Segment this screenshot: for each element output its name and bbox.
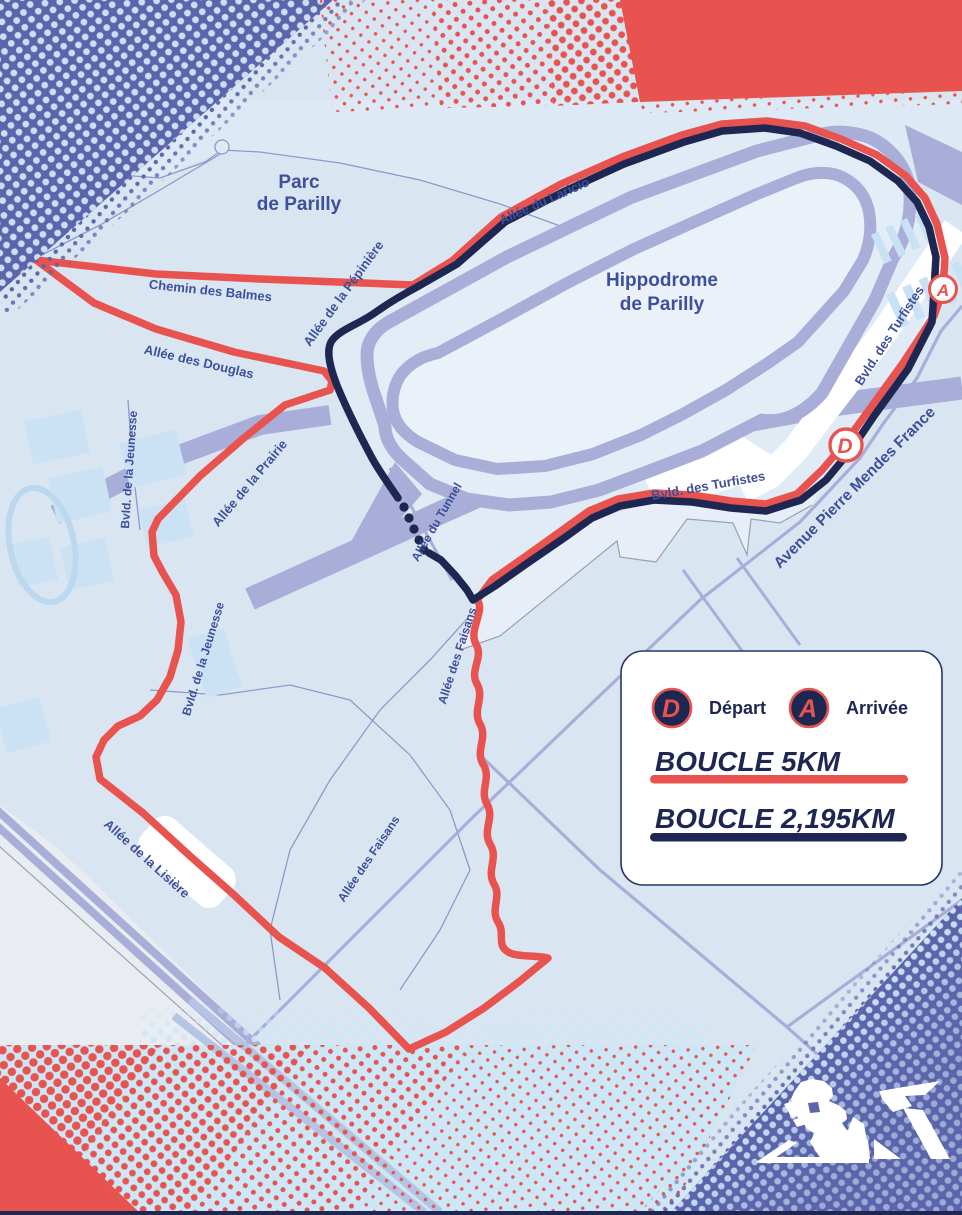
svg-text:A: A — [936, 281, 949, 300]
svg-text:BOUCLE 5KM: BOUCLE 5KM — [655, 746, 841, 777]
svg-text:Arrivée: Arrivée — [846, 698, 908, 718]
svg-text:Hippodrome: Hippodrome — [606, 270, 718, 291]
svg-text:Départ: Départ — [709, 698, 766, 718]
svg-text:D: D — [662, 695, 680, 723]
svg-text:Parc: Parc — [278, 172, 320, 193]
svg-text:de Parilly: de Parilly — [620, 294, 705, 315]
svg-text:BOUCLE 2,195KM: BOUCLE 2,195KM — [655, 803, 895, 834]
svg-text:de Parilly: de Parilly — [257, 194, 342, 215]
svg-text:D: D — [837, 435, 852, 458]
svg-text:A: A — [798, 695, 817, 723]
